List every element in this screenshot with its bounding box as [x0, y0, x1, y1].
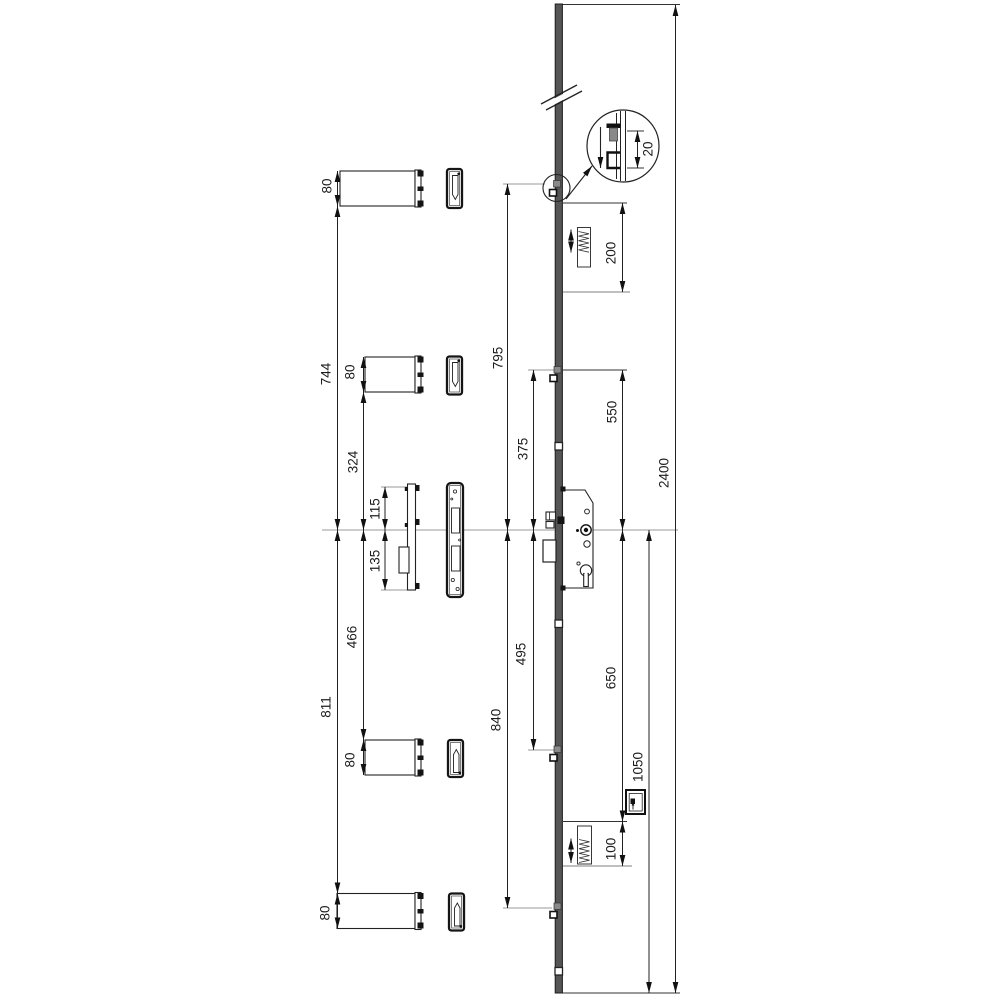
- dim-label-115: 115: [368, 498, 383, 520]
- dim-label-100: 100: [604, 838, 619, 861]
- dim-label-200: 200: [604, 242, 619, 265]
- dim-label-1050: 1050: [631, 752, 646, 782]
- shootbolt-spring-top: [571, 228, 591, 268]
- dim-label-650: 650: [604, 667, 619, 690]
- dim-label-550: 550: [605, 401, 620, 424]
- keep-5: [337, 893, 424, 930]
- dim-label-495: 495: [514, 643, 529, 666]
- center-strike-plate: [447, 483, 463, 597]
- dim-label-375: 375: [516, 438, 531, 461]
- leader-arrow: [566, 166, 592, 199]
- dim-label-811: 811: [319, 696, 334, 718]
- dim-label-324: 324: [346, 450, 361, 473]
- keep-2: [365, 356, 424, 393]
- dim-label-keep2: 80: [343, 364, 358, 379]
- latch-cutout: [452, 508, 460, 533]
- shootbolt-spring-bottom: [571, 826, 592, 864]
- keep-1: [340, 170, 424, 207]
- deadbolt-side-view: [399, 547, 409, 573]
- keep-4: [365, 739, 424, 776]
- striker-plate-4: [448, 740, 463, 777]
- dim-label-20: 20: [641, 141, 656, 156]
- lock-case: [543, 487, 593, 591]
- dim-label-keep4: 80: [343, 752, 358, 767]
- technical-drawing-page: 80 744 80 324 115 135 466 811 80 80 795 …: [0, 0, 1000, 1000]
- dim-label-466: 466: [345, 626, 360, 649]
- striker-plate-5: [449, 894, 464, 931]
- striker-plate-2: [447, 357, 462, 395]
- dim-label-795: 795: [491, 347, 506, 370]
- dim-label-840: 840: [489, 709, 504, 732]
- dim-label-744: 744: [319, 362, 334, 385]
- trigger-box: [626, 790, 645, 814]
- dim-label-2400: 2400: [657, 458, 672, 488]
- multipoint-lock-drawing: 80 744 80 324 115 135 466 811 80 80 795 …: [0, 0, 1000, 1000]
- deadbolt-cutout: [452, 546, 461, 571]
- dim-label-keep1: 80: [320, 178, 335, 193]
- dimension-labels: 80 744 80 324 115 135 466 811 80 80 795 …: [318, 141, 672, 920]
- center-faceplate-side-view: [399, 484, 420, 590]
- dim-label-keep5: 80: [318, 905, 333, 920]
- striker-plate-1: [447, 169, 462, 208]
- flat-rail: [555, 4, 562, 993]
- deadbolt: [543, 540, 556, 562]
- dim-label-135: 135: [368, 550, 383, 573]
